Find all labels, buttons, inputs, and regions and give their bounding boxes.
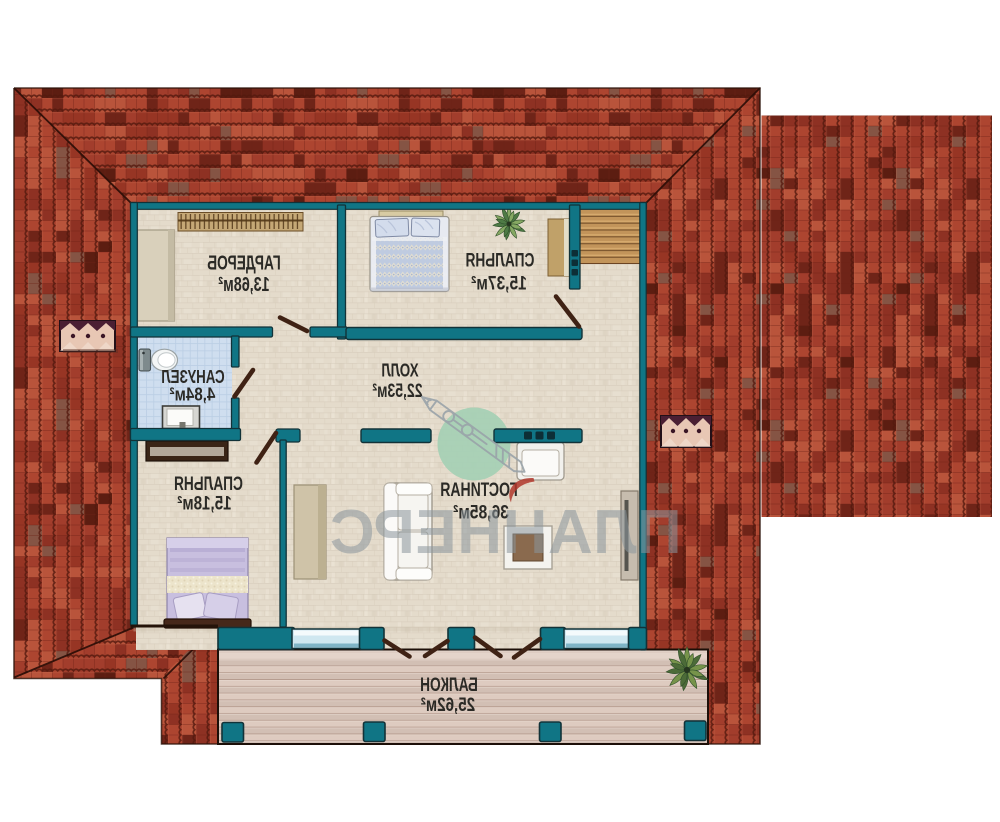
svg-text:22,53м²: 22,53м² — [372, 380, 422, 402]
svg-text:ПЛАННЕРС: ПЛАННЕРС — [329, 498, 681, 567]
svg-text:СПАЛЬНЯ: СПАЛЬНЯ — [466, 249, 535, 271]
svg-text:13,68м²: 13,68м² — [218, 272, 269, 295]
svg-text:25,62м²: 25,62м² — [421, 693, 475, 715]
svg-text:ХОЛЛ: ХОЛЛ — [381, 360, 418, 381]
svg-text:15,18м²: 15,18м² — [177, 492, 231, 514]
svg-text:ГАРДЕРОБ: ГАРДЕРОБ — [207, 251, 281, 274]
svg-text:4,84м²: 4,84м² — [169, 384, 215, 405]
svg-text:15,37м²: 15,37м² — [471, 272, 527, 294]
